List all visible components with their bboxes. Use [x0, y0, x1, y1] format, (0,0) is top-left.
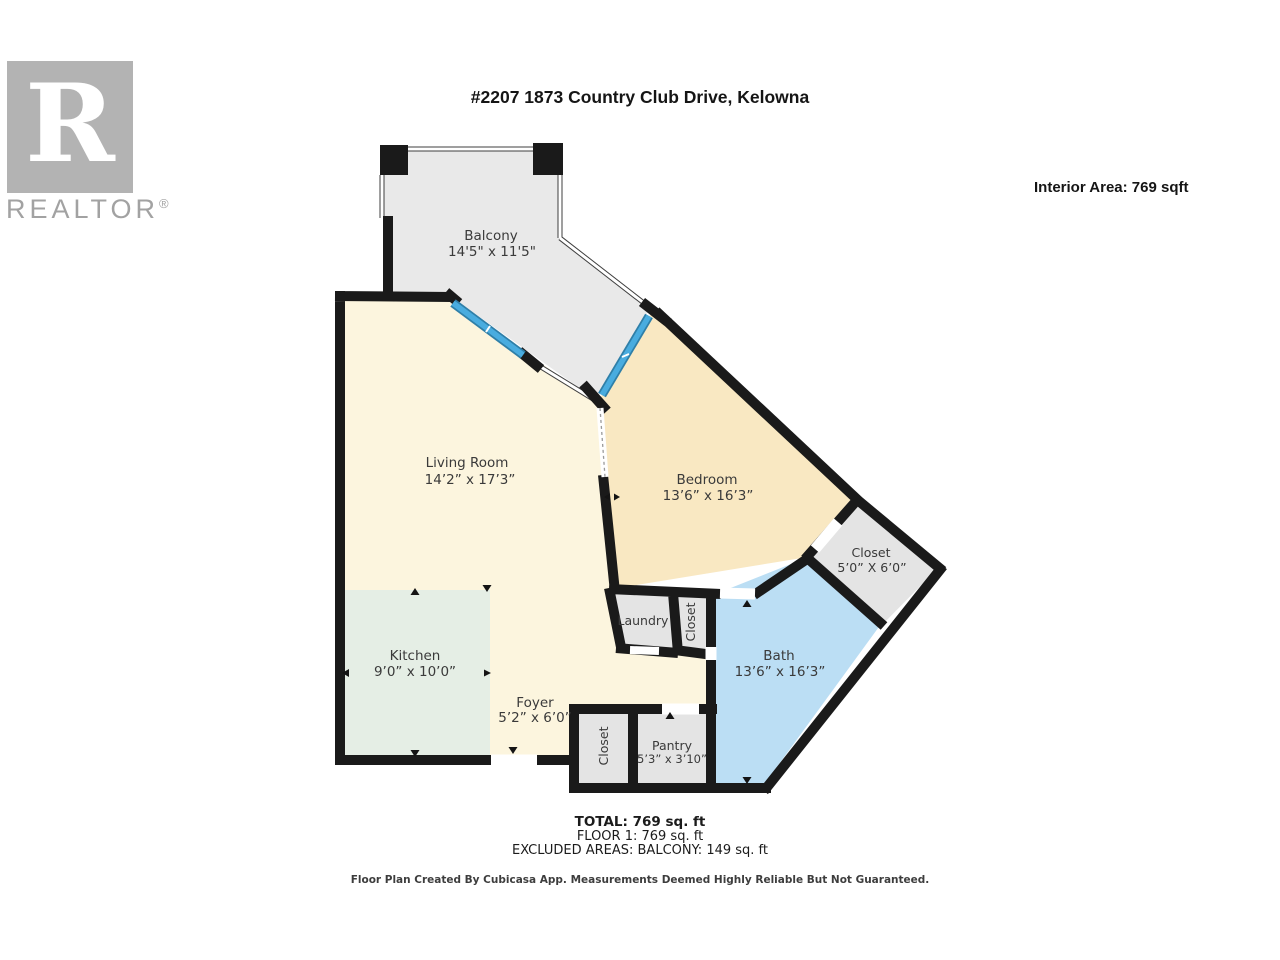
floor-plan-page: { "logo": { "letter": "R", "brand": "REA… — [0, 0, 1280, 960]
pillar-right — [533, 143, 563, 175]
pantry-dims: 5’3” x 3’10” — [637, 752, 707, 766]
bedroom-label: Bedroom — [676, 472, 737, 488]
balcony-dims: 14'5" x 11'5" — [448, 244, 536, 260]
interior-opening — [600, 408, 605, 477]
living-room-dims: 14’2” x 17’3” — [425, 472, 516, 488]
pillar-left — [380, 145, 408, 175]
floor1-area-text: FLOOR 1: 769 sq. ft — [0, 830, 1280, 844]
realtor-logo-wordmark: REALTOR® — [6, 194, 169, 225]
registered-trademark-symbol: ® — [159, 196, 169, 211]
realtor-brand-text: REALTOR — [6, 194, 159, 224]
foyer-label: Foyer — [516, 695, 554, 711]
kitchen-dims: 9’0” x 10’0” — [374, 664, 456, 680]
pantry-label: Pantry — [652, 738, 693, 753]
total-area-text: TOTAL: 769 sq. ft — [0, 815, 1280, 830]
bedroom-dims: 13’6” x 16’3” — [663, 488, 754, 504]
laundry-label: Laundry — [618, 613, 670, 628]
laundry-door-gap — [630, 650, 659, 651]
page-title: #2207 1873 Country Club Drive, Kelowna — [0, 87, 1280, 108]
foyer-dims: 5’2” x 6’0” — [498, 710, 572, 726]
closet-mid-label: Closet — [683, 602, 698, 641]
closet-label: Closet — [852, 545, 891, 560]
balcony-label: Balcony — [464, 228, 518, 244]
living-room-label: Living Room — [426, 455, 509, 471]
area-summary: TOTAL: 769 sq. ft FLOOR 1: 769 sq. ft EX… — [0, 815, 1280, 858]
interior-area-label: Interior Area: 769 sqft — [1034, 179, 1189, 196]
realtor-logo: R — [7, 61, 133, 193]
excluded-area-text: EXCLUDED AREAS: BALCONY: 149 sq. ft — [0, 844, 1280, 858]
living-bedroom-opening — [600, 408, 605, 477]
kitchen-label: Kitchen — [390, 648, 441, 664]
floor-plan-drawing: Balcony 14'5" x 11'5" Living Room 14’2” … — [320, 130, 960, 810]
disclaimer-text: Floor Plan Created By Cubicasa App. Meas… — [0, 874, 1280, 886]
bath-label: Bath — [763, 648, 794, 664]
bath-dims: 13’6” x 16’3” — [735, 664, 826, 680]
closet-bottom-label: Closet — [596, 726, 611, 765]
closet-dims: 5’0” X 6’0” — [837, 560, 906, 575]
